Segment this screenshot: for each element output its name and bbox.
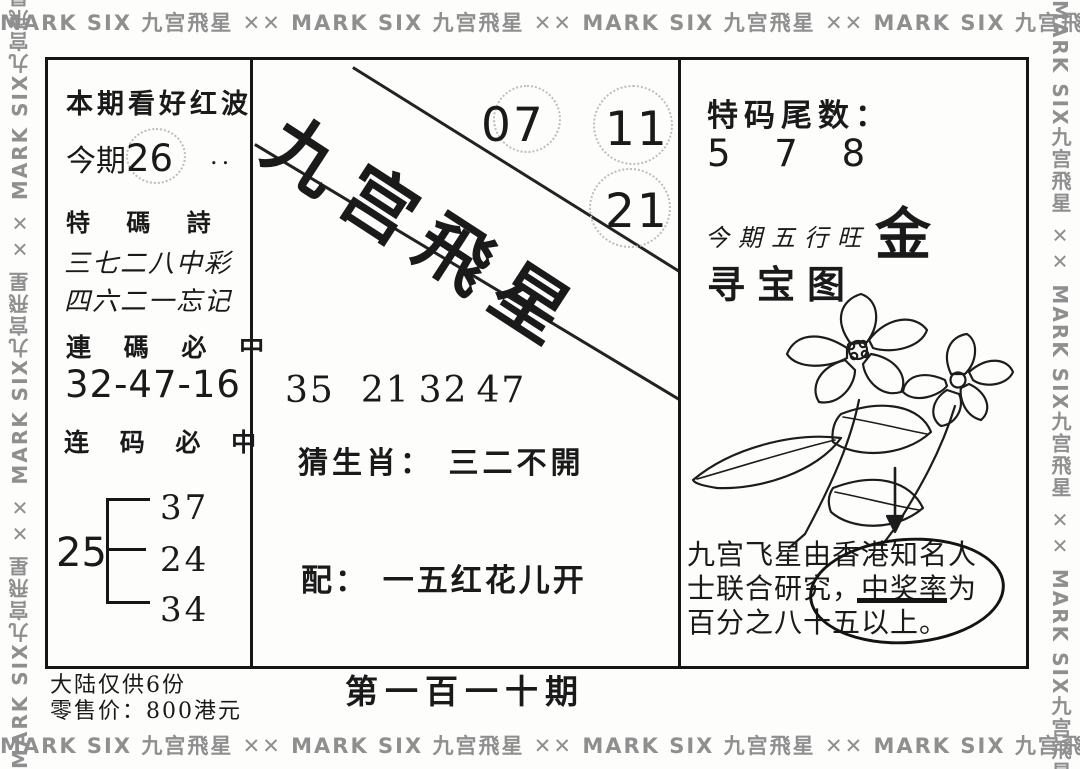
number-row-value: 32 (419, 370, 469, 411)
wuxing-element: 金 (875, 190, 931, 271)
lottery-tip-sheet: MARK SIX 九宫飛星 ✕✕ MARK SIX 九宫飛星 ✕✕ MARK S… (0, 0, 1080, 769)
poem-title: 特 碼 詩 (66, 203, 225, 238)
pair-value: 一五红花儿开 (383, 563, 587, 599)
bracket-top-stub (106, 498, 150, 501)
bracket-root-number: 25 (56, 530, 107, 576)
issue-number: 第一百一十期 (345, 665, 585, 713)
bracket-leaf-number: 34 (160, 590, 209, 630)
border-strip-left: MARK SIX九宫飛星 ✕✕ MARK SIX九宫飛星 ✕✕ MARK SIX… (2, 0, 38, 769)
headline: 本期看好红波 (66, 82, 252, 121)
tail-numbers: 5 7 8 (707, 132, 881, 175)
right-column: 特码尾数： 5 7 8 今期五行旺 金 寻宝图 (681, 60, 1026, 666)
poem-line-1: 三七二八中彩 (64, 243, 232, 280)
period-number: 26 (126, 137, 173, 180)
lucky-number-11: 11 (605, 102, 669, 157)
border-strip-top: MARK SIX 九宫飛星 ✕✕ MARK SIX 九宫飛星 ✕✕ MARK S… (0, 6, 1080, 40)
border-strip-bottom: MARK SIX 九宫飛星 ✕✕ MARK SIX 九宫飛星 ✕✕ MARK S… (0, 729, 1080, 763)
period-label: 今期 (66, 144, 126, 179)
flower-illustration (683, 282, 1023, 552)
number-row-value: 21 (361, 370, 411, 411)
bracket-middle-stub (106, 548, 146, 551)
lianma-label-simplified: 连 码 必 中 (64, 423, 267, 459)
lianma-label-traditional: 連 碼 必 中 (66, 328, 276, 364)
tail-number-label: 特码尾数： (707, 90, 892, 135)
number-row-value: 35 (285, 370, 335, 411)
pair-line: 配： 一五红花儿开 (301, 555, 587, 600)
bracket-vertical-line (106, 498, 109, 604)
lianma-numbers: 32-47-16 (65, 363, 241, 406)
number-row: 35213247 (285, 370, 526, 411)
zodiac-line: 猜生肖： 三二不開 (298, 438, 584, 482)
bracket-leaf-number: 37 (160, 488, 209, 528)
bracket-leaf-number: 24 (160, 540, 209, 580)
number-row-value: 47 (476, 370, 526, 411)
wuxing-label: 今期五行旺 (705, 218, 870, 253)
lucky-number-07: 07 (481, 98, 545, 153)
pair-label: 配： (301, 563, 369, 599)
bracket-bottom-stub (106, 601, 150, 604)
middle-column: 九宫飛星 07 11 21 35213247 猜生肖： 三二不開 配： 一五红花… (253, 60, 678, 666)
zodiac-value: 三二不開 (448, 446, 584, 481)
border-strip-right: MARK SIX九宫飛星 ✕✕ MARK SIX九宫飛星 ✕✕ MARK SIX… (1042, 0, 1078, 769)
period-dots: .. (210, 142, 233, 170)
left-column: 本期看好红波 今期26 .. 特 碼 詩 三七二八中彩 四六二一忘记 連 碼 必… (48, 60, 250, 666)
footer: 大陆仅供6份 零售价：800港元 第一百一十期 (45, 663, 1023, 725)
poem-line-2: 四六二一忘记 (64, 281, 232, 318)
lucky-number-21: 21 (605, 184, 669, 239)
main-frame: 本期看好红波 今期26 .. 特 碼 詩 三七二八中彩 四六二一忘记 連 碼 必… (45, 57, 1029, 669)
period-line: 今期26 (66, 136, 173, 180)
zodiac-label: 猜生肖： (298, 446, 434, 481)
retail-price: 零售价：800港元 (50, 693, 242, 725)
